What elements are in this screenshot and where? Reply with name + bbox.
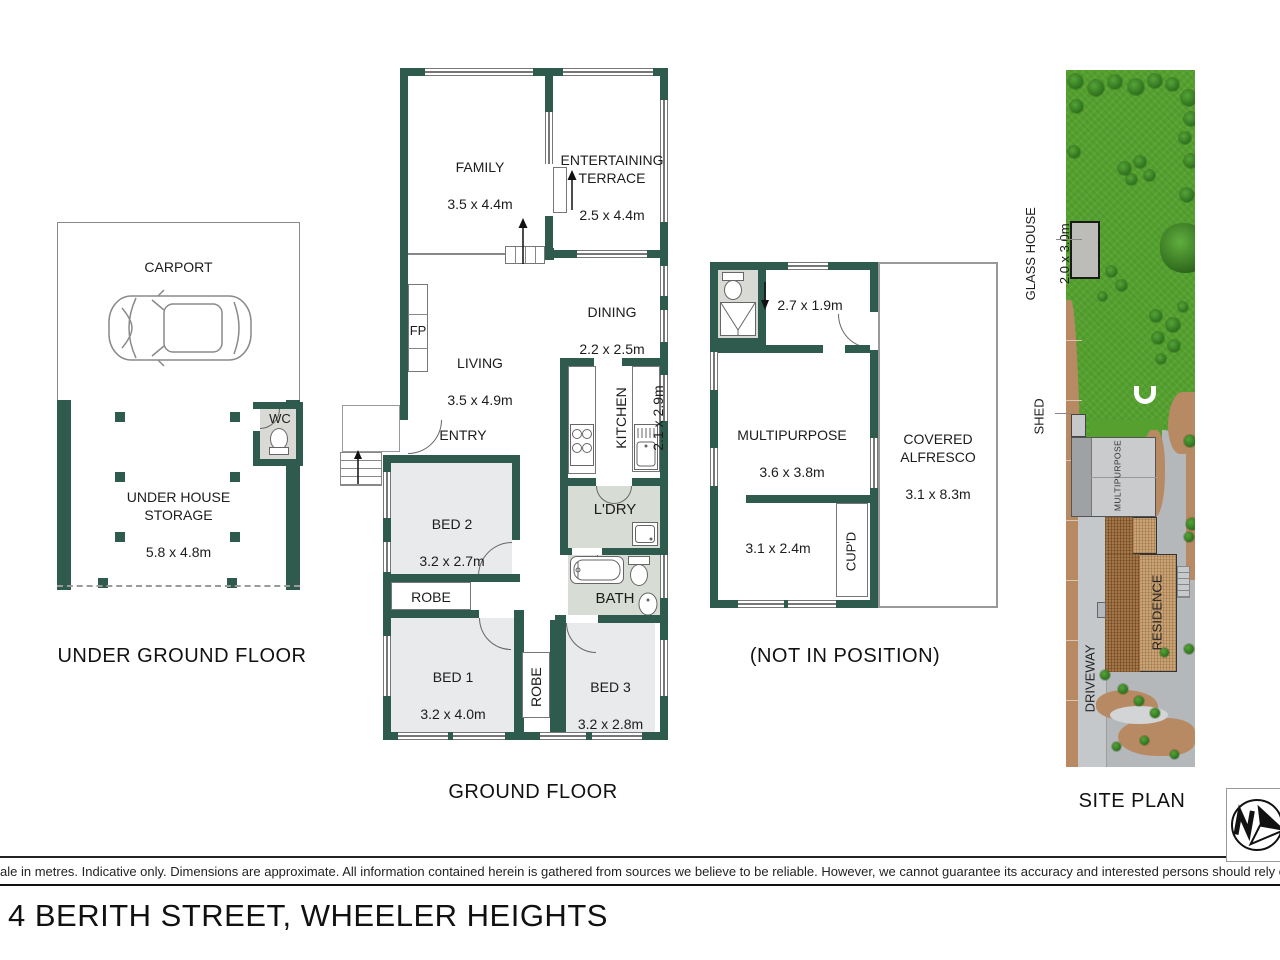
multipurpose-dims: 3.6 x 3.8m bbox=[759, 464, 824, 480]
bush bbox=[1134, 156, 1146, 168]
site-title: SITE PLAN bbox=[1062, 790, 1202, 813]
site-plan: MULTIPURPOSE RESIDENCE DRIVEWAY bbox=[1000, 60, 1280, 820]
annex-wc-dims: 2.7 x 1.9m bbox=[770, 296, 850, 314]
window bbox=[788, 262, 828, 270]
bed3-dims: 3.2 x 2.8m bbox=[578, 716, 643, 732]
bush bbox=[1184, 644, 1194, 654]
dirt-patch bbox=[1186, 450, 1195, 580]
bush bbox=[1134, 696, 1144, 706]
bush bbox=[1150, 310, 1162, 322]
toilet-icon bbox=[722, 272, 742, 300]
address-title: 4 BERITH STREET, WHEELER HEIGHTS bbox=[8, 898, 1108, 934]
shed-leader-line bbox=[1055, 413, 1071, 414]
window bbox=[540, 732, 586, 740]
wall bbox=[710, 270, 718, 608]
glasshouse bbox=[1070, 221, 1100, 279]
residence-main-dark bbox=[1105, 554, 1140, 672]
bush bbox=[1184, 435, 1195, 447]
alfresco-name: COVERED ALFRESCO bbox=[900, 431, 975, 465]
window bbox=[738, 600, 784, 608]
bush bbox=[1184, 112, 1195, 126]
bush bbox=[1184, 532, 1194, 542]
shower-icon bbox=[720, 302, 756, 336]
ground-title: GROUND FLOOR bbox=[433, 781, 633, 804]
glasshouse-dims: 2.0 x 3.0m bbox=[1057, 223, 1072, 284]
dirt-line bbox=[1066, 340, 1082, 341]
bush bbox=[1112, 742, 1121, 751]
window bbox=[870, 438, 878, 488]
bush bbox=[1128, 79, 1144, 95]
window bbox=[710, 448, 718, 486]
store-dims: 3.1 x 2.4m bbox=[736, 539, 820, 557]
site-multipurpose-label: MULTIPURPOSE bbox=[1112, 436, 1123, 516]
window bbox=[592, 732, 642, 740]
site-driveway-label: DRIVEWAY bbox=[1083, 633, 1100, 723]
cupboard-label: CUP'D bbox=[844, 516, 861, 586]
window bbox=[788, 600, 836, 608]
site-steps bbox=[1177, 566, 1190, 598]
annex-door-arc bbox=[838, 314, 870, 348]
bush bbox=[1181, 90, 1195, 106]
alfresco-dims: 3.1 x 8.3m bbox=[905, 486, 970, 502]
glasshouse-name: GLASS HOUSE bbox=[1023, 207, 1038, 300]
window bbox=[710, 352, 718, 390]
bush bbox=[1118, 684, 1128, 694]
annex-title: (NOT IN POSITION) bbox=[735, 645, 955, 668]
annex-plan: COVERED ALFRESCO 3.1 x 8.3m bbox=[0, 0, 1020, 700]
bush bbox=[1180, 188, 1194, 202]
wall bbox=[845, 345, 870, 353]
residence-porch bbox=[1097, 602, 1106, 618]
bush bbox=[1108, 75, 1122, 89]
door-gap bbox=[870, 312, 878, 350]
dirt-line bbox=[1066, 400, 1082, 401]
bush bbox=[1106, 266, 1117, 277]
window bbox=[453, 732, 505, 740]
shed bbox=[1071, 414, 1086, 437]
bush bbox=[1116, 280, 1127, 291]
glasshouse-leader-line bbox=[1056, 239, 1082, 240]
shed-label: SHED bbox=[1032, 394, 1049, 438]
bush bbox=[1168, 340, 1180, 352]
bed1-dims: 3.2 x 4.0m bbox=[420, 706, 485, 722]
bush bbox=[1160, 648, 1169, 657]
wall bbox=[718, 345, 823, 353]
bush bbox=[1179, 132, 1191, 144]
bush bbox=[1070, 100, 1083, 113]
bush bbox=[1088, 80, 1104, 96]
bush bbox=[1144, 170, 1155, 181]
bush bbox=[1184, 154, 1195, 168]
alfresco-label: COVERED ALFRESCO 3.1 x 8.3m bbox=[880, 412, 996, 503]
bush bbox=[1152, 332, 1164, 344]
bush bbox=[1170, 750, 1179, 759]
bush bbox=[1156, 354, 1166, 364]
wall bbox=[746, 495, 870, 503]
disclaimer-rule-top bbox=[0, 856, 1280, 858]
multipurpose-name: MULTIPURPOSE bbox=[737, 427, 846, 443]
bush bbox=[1140, 736, 1149, 745]
compass-icon bbox=[1226, 788, 1280, 862]
bush bbox=[1118, 162, 1131, 175]
bush bbox=[1098, 292, 1107, 301]
disclaimer-rule-bottom bbox=[0, 884, 1280, 886]
bush bbox=[1100, 670, 1110, 680]
site-strip: MULTIPURPOSE RESIDENCE DRIVEWAY bbox=[1066, 70, 1195, 767]
residence-upper-dark bbox=[1105, 517, 1133, 554]
garden-bed bbox=[1118, 718, 1195, 756]
bush bbox=[1068, 146, 1080, 158]
bush bbox=[1150, 708, 1160, 718]
bush bbox=[1178, 302, 1188, 312]
bush bbox=[1126, 174, 1137, 185]
glasshouse-label: GLASS HOUSE 2.0 x 3.0m bbox=[1006, 196, 1074, 312]
bush bbox=[1068, 74, 1083, 89]
multipurpose-label: MULTIPURPOSE 3.6 x 3.8m bbox=[722, 408, 862, 481]
bush bbox=[1166, 318, 1180, 332]
bush bbox=[1166, 78, 1179, 91]
floorplan-page: CARPORT 5.8 x 4.4m WC bbox=[0, 0, 1280, 960]
window bbox=[398, 732, 448, 740]
disclaimer-text: ale in metres. Indicative only. Dimensio… bbox=[0, 861, 1280, 882]
bush bbox=[1186, 518, 1195, 530]
bush bbox=[1148, 74, 1162, 88]
